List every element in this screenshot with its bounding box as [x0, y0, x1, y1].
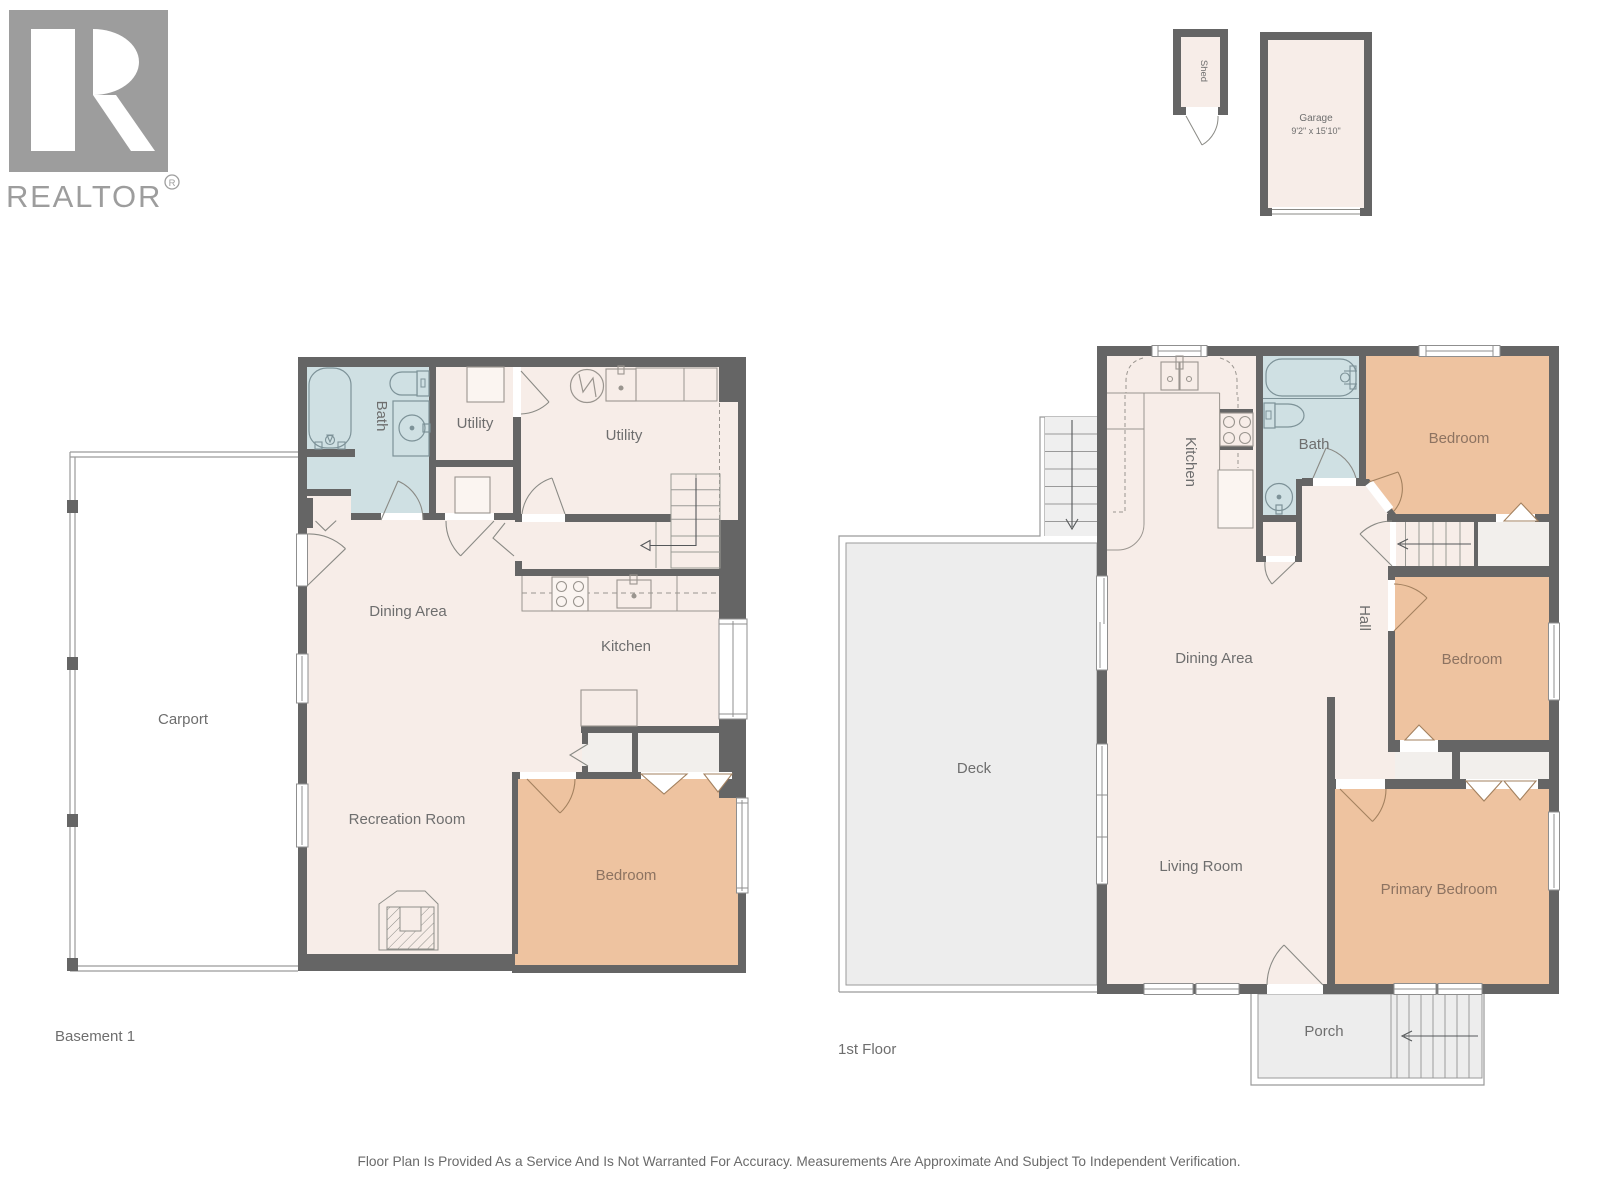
svg-text:Floor Plan Is Provided As a Se: Floor Plan Is Provided As a Service And … [357, 1154, 1240, 1169]
svg-text:R: R [169, 178, 176, 189]
svg-text:Utility: Utility [606, 427, 643, 444]
svg-text:Hall: Hall [1356, 605, 1373, 631]
svg-text:REALTOR: REALTOR [6, 179, 162, 214]
svg-text:1st Floor: 1st Floor [838, 1041, 896, 1058]
svg-text:Utility: Utility [457, 415, 494, 432]
svg-text:Bath: Bath [373, 401, 390, 432]
svg-text:Dining Area: Dining Area [369, 603, 447, 620]
svg-text:Deck: Deck [957, 760, 992, 777]
svg-text:Primary Bedroom: Primary Bedroom [1381, 881, 1498, 898]
svg-text:Garage: Garage [1299, 113, 1333, 124]
svg-text:Living Room: Living Room [1159, 858, 1242, 875]
svg-text:Kitchen: Kitchen [1182, 437, 1199, 487]
svg-text:Bedroom: Bedroom [1442, 651, 1503, 668]
svg-text:Kitchen: Kitchen [601, 638, 651, 655]
svg-text:Bedroom: Bedroom [596, 867, 657, 884]
svg-text:Basement 1: Basement 1 [55, 1028, 135, 1045]
svg-text:9'2" x 15'10": 9'2" x 15'10" [1291, 126, 1340, 136]
svg-text:Dining Area: Dining Area [1175, 650, 1253, 667]
svg-text:Recreation Room: Recreation Room [349, 811, 466, 828]
svg-text:Shed: Shed [1198, 60, 1209, 82]
svg-text:Carport: Carport [158, 711, 209, 728]
svg-text:Bedroom: Bedroom [1429, 430, 1490, 447]
svg-text:Porch: Porch [1304, 1023, 1343, 1040]
svg-text:Bath: Bath [1299, 436, 1330, 453]
